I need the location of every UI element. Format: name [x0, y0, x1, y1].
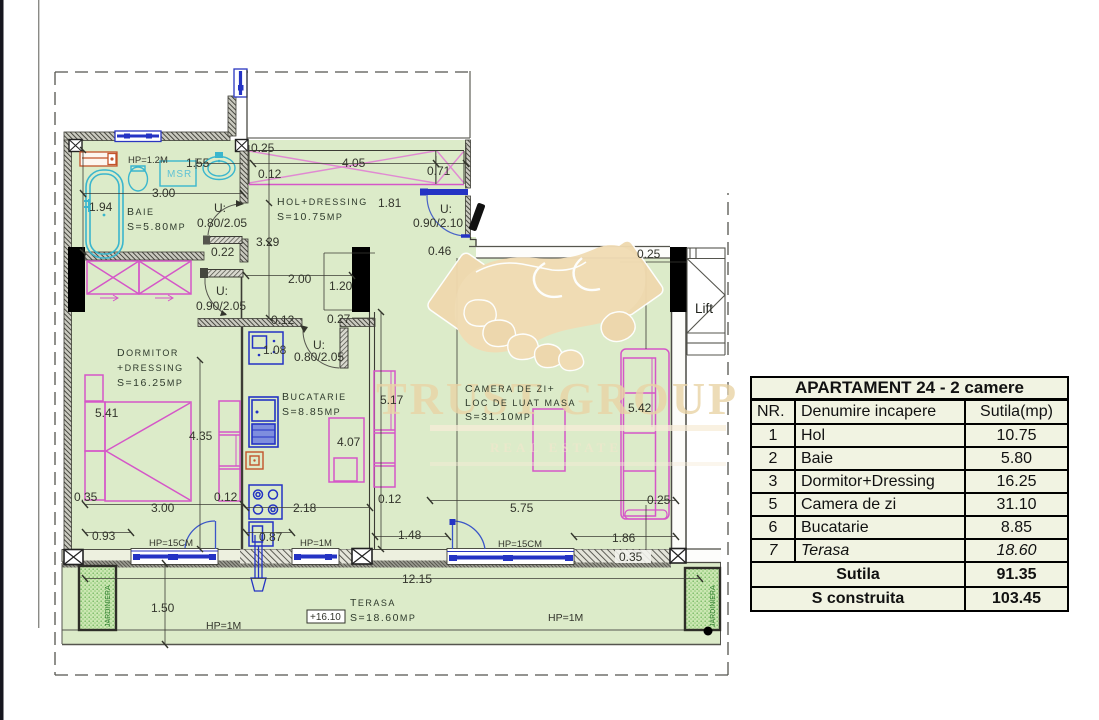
svg-text:CAMERA DE ZI+: CAMERA DE ZI+ [465, 383, 555, 395]
svg-text:LOC DE LUAT MASA: LOC DE LUAT MASA [465, 397, 576, 409]
svg-text:S=10.75MP: S=10.75MP [277, 211, 343, 223]
svg-text:0.12: 0.12 [214, 490, 238, 504]
svg-text:4.07: 4.07 [337, 435, 361, 449]
svg-text:S=16.25MP: S=16.25MP [117, 377, 183, 389]
svg-text:1.48: 1.48 [398, 528, 422, 542]
svg-text:0.12: 0.12 [271, 313, 295, 327]
svg-text:0.27: 0.27 [327, 312, 351, 326]
svg-text:5.41: 5.41 [95, 406, 119, 420]
svg-text:0.71: 0.71 [427, 164, 451, 178]
svg-text:5.42: 5.42 [628, 401, 652, 415]
svg-text:JARDINIERA: JARDINIERA [105, 585, 112, 627]
svg-text:0.25: 0.25 [647, 493, 671, 507]
svg-text:MSR: MSR [167, 169, 192, 180]
svg-text:U:: U: [214, 201, 226, 215]
svg-text:HP=1.2M: HP=1.2M [128, 155, 168, 166]
svg-text:1.08: 1.08 [263, 343, 287, 357]
svg-text:0.22: 0.22 [211, 245, 235, 259]
svg-text:U:: U: [440, 202, 452, 216]
svg-text:JARDINIERA: JARDINIERA [710, 585, 717, 627]
svg-text:BUCATARIE: BUCATARIE [282, 391, 347, 403]
svg-text:HP=15CM: HP=15CM [498, 539, 542, 550]
svg-text:0.93: 0.93 [92, 529, 116, 543]
svg-text:1.55: 1.55 [186, 156, 210, 170]
svg-text:HP=15CM: HP=15CM [149, 538, 193, 549]
svg-text:0.90/2.05: 0.90/2.05 [196, 299, 246, 313]
svg-text:4.35: 4.35 [189, 429, 213, 443]
svg-text:0.12: 0.12 [258, 167, 282, 181]
svg-text:0.46: 0.46 [428, 244, 452, 258]
svg-text:1.81: 1.81 [378, 196, 402, 210]
svg-text:0.35: 0.35 [619, 550, 643, 564]
svg-text:0.25: 0.25 [637, 247, 661, 261]
svg-text:3.00: 3.00 [152, 186, 176, 200]
svg-text:HOL+DRESSING: HOL+DRESSING [277, 196, 368, 208]
svg-text:U:: U: [216, 284, 228, 298]
svg-text:3.29: 3.29 [256, 235, 280, 249]
svg-text:TERASA: TERASA [350, 597, 396, 609]
svg-text:5.17: 5.17 [380, 393, 404, 407]
svg-text:0.80/2.05: 0.80/2.05 [197, 216, 247, 230]
svg-text:3.00: 3.00 [151, 501, 175, 515]
svg-text:0.87: 0.87 [259, 530, 283, 544]
svg-text:S=31.10MP: S=31.10MP [465, 411, 531, 423]
svg-text:0.90/2.10: 0.90/2.10 [413, 216, 463, 230]
svg-text:5.75: 5.75 [510, 501, 534, 515]
svg-text:REAL ESTATE: REAL ESTATE [490, 440, 622, 455]
svg-text:BAIE: BAIE [127, 206, 155, 218]
svg-text:0.35: 0.35 [74, 490, 98, 504]
svg-text:HP=1M: HP=1M [548, 612, 583, 624]
svg-text:Lift: Lift [695, 301, 713, 316]
svg-text:0.80/2.05: 0.80/2.05 [294, 350, 344, 364]
svg-text:1.86: 1.86 [612, 531, 636, 545]
svg-text:S=18.60MP: S=18.60MP [350, 612, 416, 624]
svg-text:12.15: 12.15 [402, 572, 432, 586]
svg-text:+16.10: +16.10 [310, 612, 341, 623]
svg-text:S=5.80MP: S=5.80MP [127, 221, 186, 233]
svg-text:1.20: 1.20 [329, 279, 353, 293]
svg-text:1.50: 1.50 [151, 601, 175, 615]
svg-text:HP=1M: HP=1M [300, 538, 332, 549]
svg-text:S=8.85MP: S=8.85MP [282, 406, 341, 418]
svg-text:4.05: 4.05 [342, 156, 366, 170]
svg-text:0.12: 0.12 [378, 492, 402, 506]
svg-text:0.25: 0.25 [251, 141, 275, 155]
svg-text:2.18: 2.18 [293, 501, 317, 515]
svg-text:2.00: 2.00 [288, 272, 312, 286]
svg-text:1.94: 1.94 [89, 200, 113, 214]
svg-text:+DRESSING: +DRESSING [117, 362, 184, 374]
svg-text:DORMITOR: DORMITOR [117, 347, 179, 359]
svg-text:HP=1M: HP=1M [206, 620, 241, 632]
